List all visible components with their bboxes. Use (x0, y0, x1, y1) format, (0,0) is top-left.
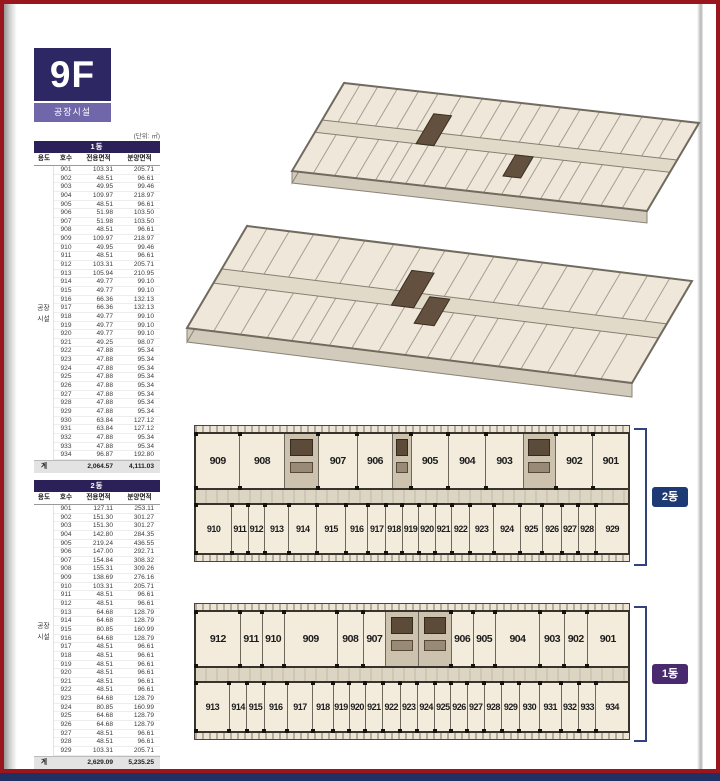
plan2-top-row: 909 908 907 906 (194, 432, 630, 490)
unit-number: 924 (419, 702, 433, 712)
cell-supply-area: 292.71 (119, 548, 160, 556)
cell-supply-area: 99.46 (119, 244, 160, 252)
cell-exclusive-area: 48.51 (78, 730, 119, 738)
cell-unit-number: 901 (54, 505, 78, 513)
unit-cell: 925 (435, 683, 451, 731)
cell-supply-area: 99.10 (119, 278, 160, 286)
use-label-line2: 시설 (37, 631, 49, 641)
cell-exclusive-area: 49.95 (78, 183, 119, 191)
unit-cell: 905 (412, 434, 449, 488)
total-supply-area: 4,111.03 (119, 461, 160, 473)
cell-supply-area: 95.34 (119, 382, 160, 390)
column-header-supply-area: 분양면적 (119, 492, 160, 504)
unit-cell (524, 434, 557, 488)
page-left-shading (4, 4, 17, 769)
cell-unit-number: 906 (54, 209, 78, 217)
total-spacer (54, 757, 78, 769)
unit-number: 907 (366, 633, 382, 645)
cell-exclusive-area: 103.31 (78, 747, 119, 755)
unit-cell: 915 (317, 505, 346, 553)
cell-supply-area: 128.79 (119, 635, 160, 643)
table-row: 906 147.00 292.71 (54, 548, 160, 557)
cell-unit-number: 908 (54, 565, 78, 573)
table-row: 915 80.85 160.99 (54, 626, 160, 635)
unit-cell: 928 (485, 683, 502, 731)
cell-exclusive-area: 48.51 (78, 201, 119, 209)
cell-supply-area: 308.32 (119, 557, 160, 565)
unit-cell: 922 (452, 505, 470, 553)
cell-supply-area: 218.97 (119, 235, 160, 243)
table-row: 927 47.88 95.34 (54, 391, 160, 400)
total-supply-area: 5,235.25 (119, 757, 160, 769)
table-header: 용도 호수 전용면적 분양면적 (34, 492, 160, 505)
unit-number: 908 (254, 455, 270, 467)
unit-number: 904 (459, 455, 475, 467)
cell-exclusive-area: 48.51 (78, 738, 119, 746)
table-row: 916 66.36 132.13 (54, 296, 160, 305)
cell-exclusive-area: 105.94 (78, 270, 119, 278)
cell-exclusive-area: 63.84 (78, 425, 119, 433)
table-row: 920 48.51 96.61 (54, 669, 160, 678)
cell-exclusive-area: 47.88 (78, 443, 119, 451)
table-rows: 901 103.31 205.71 902 48.51 96.61 903 (54, 166, 160, 460)
total-label: 계 (34, 461, 54, 473)
cell-exclusive-area: 109.97 (78, 235, 119, 243)
unit-number: 926 (452, 702, 466, 712)
unit-number: 918 (316, 702, 330, 712)
cell-unit-number: 914 (54, 278, 78, 286)
bracket-1dong (634, 606, 647, 742)
unit-number: 903 (496, 455, 512, 467)
table-row: 922 48.51 96.61 (54, 686, 160, 695)
unit-number: 902 (566, 455, 582, 467)
cell-exclusive-area: 147.00 (78, 548, 119, 556)
cell-supply-area: 128.79 (119, 609, 160, 617)
cell-unit-number: 926 (54, 382, 78, 390)
table-row: 911 48.51 96.61 (54, 591, 160, 600)
cell-exclusive-area: 48.51 (78, 686, 119, 694)
cell-unit-number: 907 (54, 557, 78, 565)
table-row: 925 47.88 95.34 (54, 373, 160, 382)
area-table-2dong: 2동 용도 호수 전용면적 분양면적 공장 시설 901 127.11 (34, 480, 160, 769)
unit-number: 907 (330, 455, 346, 467)
unit-cell: 914 (230, 683, 247, 731)
unit-cell: 921 (366, 683, 383, 731)
cell-unit-number: 930 (54, 417, 78, 425)
unit-number: 933 (580, 702, 594, 712)
table-title-2dong: 2동 (34, 480, 160, 492)
unit-number: 922 (454, 524, 468, 534)
cell-exclusive-area: 48.51 (78, 226, 119, 234)
table-row: 919 48.51 96.61 (54, 661, 160, 670)
cell-unit-number: 902 (54, 175, 78, 183)
unit-number: 929 (504, 702, 518, 712)
cell-exclusive-area: 64.68 (78, 617, 119, 625)
cell-supply-area: 95.34 (119, 356, 160, 364)
cell-unit-number: 903 (54, 522, 78, 530)
cell-supply-area: 128.79 (119, 617, 160, 625)
cell-unit-number: 905 (54, 540, 78, 548)
table-total-row: 계 2,064.57 4,111.03 (34, 461, 160, 473)
table-row: 911 48.51 96.61 (54, 252, 160, 261)
unit-cell: 919 (334, 683, 350, 731)
cell-supply-area: 205.71 (119, 747, 160, 755)
cell-exclusive-area: 103.31 (78, 583, 119, 591)
unit-cell: 928 (579, 505, 597, 553)
unit-number: 915 (324, 524, 338, 534)
cell-exclusive-area: 49.77 (78, 287, 119, 295)
unit-cell: 912 (196, 612, 241, 666)
unit-cell: 912 (249, 505, 265, 553)
table-row: 924 80.85 160.99 (54, 704, 160, 713)
plan1-bottom-row: 913 914 915 916 917 (194, 681, 630, 733)
cell-exclusive-area: 154.84 (78, 557, 119, 565)
cell-exclusive-area: 47.88 (78, 391, 119, 399)
cell-supply-area: 210.95 (119, 270, 160, 278)
table-row: 930 63.84 127.12 (54, 417, 160, 426)
cell-unit-number: 909 (54, 235, 78, 243)
unit-cell: 916 (265, 683, 288, 731)
unit-number: 926 (545, 524, 559, 534)
cell-exclusive-area: 64.68 (78, 712, 119, 720)
unit-number: 917 (370, 524, 384, 534)
unit-number: 921 (437, 524, 451, 534)
unit-number: 928 (486, 702, 500, 712)
cell-supply-area: 96.61 (119, 175, 160, 183)
cell-unit-number: 908 (54, 226, 78, 234)
cell-supply-area: 96.61 (119, 591, 160, 599)
cell-unit-number: 927 (54, 391, 78, 399)
table-row: 909 109.97 218.97 (54, 235, 160, 244)
unit-number: 905 (476, 633, 492, 645)
table-body: 공장 시설 901 127.11 253.11 902 151. (34, 505, 160, 757)
unit-cell: 913 (265, 505, 289, 553)
cell-supply-area: 96.61 (119, 678, 160, 686)
cell-exclusive-area: 103.31 (78, 166, 119, 174)
cell-exclusive-area: 48.51 (78, 661, 119, 669)
cell-supply-area: 96.61 (119, 252, 160, 260)
cell-supply-area: 96.61 (119, 661, 160, 669)
cell-unit-number: 929 (54, 408, 78, 416)
cell-unit-number: 922 (54, 686, 78, 694)
cell-supply-area: 276.16 (119, 574, 160, 582)
cell-supply-area: 96.61 (119, 686, 160, 694)
unit-number: 916 (269, 702, 283, 712)
cell-exclusive-area: 127.11 (78, 505, 119, 513)
unit-cell (285, 434, 319, 488)
use-label-line1: 공장 (37, 302, 49, 312)
cell-supply-area: 96.61 (119, 600, 160, 608)
cell-unit-number: 916 (54, 296, 78, 304)
cell-supply-area: 95.34 (119, 373, 160, 381)
table-row: 912 48.51 96.61 (54, 600, 160, 609)
cell-unit-number: 931 (54, 425, 78, 433)
cell-unit-number: 911 (54, 252, 78, 260)
unit-cell: 901 (593, 434, 628, 488)
unit-number: 902 (568, 633, 584, 645)
unit-number: 931 (544, 702, 558, 712)
cell-unit-number: 901 (54, 166, 78, 174)
cell-unit-number: 912 (54, 261, 78, 269)
unit-number: 904 (509, 633, 525, 645)
unit-number: 924 (500, 524, 514, 534)
table-row: 913 105.94 210.95 (54, 270, 160, 279)
cell-supply-area: 96.61 (119, 652, 160, 660)
unit-cell: 914 (289, 505, 317, 553)
table-row: 914 64.68 128.79 (54, 617, 160, 626)
unit-cell: 927 (562, 505, 578, 553)
total-exclusive-area: 2,064.57 (78, 461, 119, 473)
unit-cell: 922 (383, 683, 400, 731)
unit-cell: 930 (520, 683, 540, 731)
cell-unit-number: 925 (54, 712, 78, 720)
cell-unit-number: 924 (54, 365, 78, 373)
unit-cell: 916 (346, 505, 368, 553)
cell-supply-area: 96.61 (119, 643, 160, 651)
cell-exclusive-area: 48.51 (78, 252, 119, 260)
cell-supply-area: 96.61 (119, 730, 160, 738)
use-label-line1: 공장 (37, 620, 49, 630)
cell-exclusive-area: 151.30 (78, 514, 119, 522)
badge-1dong: 1동 (652, 664, 688, 684)
unit-number: 901 (600, 633, 616, 645)
total-spacer (54, 461, 78, 473)
cell-exclusive-area: 47.88 (78, 365, 119, 373)
plan1-bottom-facade (194, 733, 630, 740)
unit-cell: 931 (540, 683, 562, 731)
cell-exclusive-area: 64.68 (78, 695, 119, 703)
unit-number: 910 (265, 633, 281, 645)
cell-unit-number: 929 (54, 747, 78, 755)
table-row: 914 49.77 99.10 (54, 278, 160, 287)
unit-number: 909 (210, 455, 226, 467)
cell-supply-area: 99.10 (119, 322, 160, 330)
unit-cell: 915 (247, 683, 264, 731)
unit-cell: 905 (474, 612, 496, 666)
table-row: 927 48.51 96.61 (54, 730, 160, 739)
area-table-1dong: 1동 용도 호수 전용면적 분양면적 공장 시설 901 103.31 (34, 141, 160, 473)
cell-unit-number: 934 (54, 451, 78, 459)
cell-unit-number: 924 (54, 704, 78, 712)
table-row: 913 64.68 128.79 (54, 609, 160, 618)
cell-unit-number: 923 (54, 695, 78, 703)
cell-exclusive-area: 51.98 (78, 218, 119, 226)
plan2-bottom-facade (194, 555, 630, 562)
cell-supply-area: 205.71 (119, 261, 160, 269)
column-header-use: 용도 (34, 492, 54, 504)
table-row: 924 47.88 95.34 (54, 365, 160, 374)
unit-cell: 910 (263, 612, 285, 666)
cell-supply-area: 96.61 (119, 669, 160, 677)
cell-supply-area: 95.34 (119, 391, 160, 399)
unit-cell: 925 (521, 505, 543, 553)
cell-exclusive-area: 49.77 (78, 322, 119, 330)
cell-exclusive-area: 151.30 (78, 522, 119, 530)
table-row: 920 49.77 99.10 (54, 330, 160, 339)
cell-unit-number: 902 (54, 514, 78, 522)
unit-cell: 906 (452, 612, 474, 666)
cell-unit-number: 920 (54, 669, 78, 677)
table-row: 925 64.68 128.79 (54, 712, 160, 721)
unit-cell: 918 (386, 505, 402, 553)
cell-unit-number: 917 (54, 643, 78, 651)
cell-unit-number: 914 (54, 617, 78, 625)
unit-number: 922 (385, 702, 399, 712)
cell-exclusive-area: 64.68 (78, 609, 119, 617)
unit-cell: 924 (494, 505, 520, 553)
table-title-1dong: 1동 (34, 141, 160, 153)
cell-supply-area: 309.26 (119, 565, 160, 573)
table-row: 906 51.98 103.50 (54, 209, 160, 218)
table-row: 908 48.51 96.61 (54, 226, 160, 235)
unit-number: 908 (342, 633, 358, 645)
table-row: 919 49.77 99.10 (54, 322, 160, 331)
cell-unit-number: 910 (54, 583, 78, 591)
unit-cell: 929 (596, 505, 628, 553)
unit-number: 912 (250, 524, 264, 534)
unit-number: 923 (402, 702, 416, 712)
column-header-supply-area: 분양면적 (119, 153, 160, 165)
plan2-bottom-row: 910 911 912 913 914 (194, 503, 630, 555)
unit-cell: 907 (319, 434, 358, 488)
unit-cell: 927 (468, 683, 485, 731)
floor-plan-2dong: 909 908 907 906 (194, 425, 630, 562)
table-row: 905 219.24 436.55 (54, 540, 160, 549)
column-header-exclusive-area: 전용면적 (78, 153, 119, 165)
cell-exclusive-area: 138.69 (78, 574, 119, 582)
unit-number: 911 (233, 524, 246, 534)
cell-supply-area: 128.79 (119, 695, 160, 703)
table-row: 910 103.31 205.71 (54, 583, 160, 592)
table-row: 904 109.97 218.97 (54, 192, 160, 201)
unit-cell: 909 (285, 612, 338, 666)
unit-number: 910 (207, 524, 221, 534)
table-row: 903 151.30 301.27 (54, 522, 160, 531)
table-row: 912 103.31 205.71 (54, 261, 160, 270)
cell-unit-number: 933 (54, 443, 78, 451)
cell-unit-number: 913 (54, 609, 78, 617)
cell-exclusive-area: 96.87 (78, 451, 119, 459)
unit-cell: 917 (368, 505, 386, 553)
iso-floorplate-2 (162, 196, 707, 431)
cell-unit-number: 919 (54, 322, 78, 330)
unit-cell: 921 (436, 505, 452, 553)
use-label-line2: 시설 (37, 313, 49, 323)
cell-exclusive-area: 155.31 (78, 565, 119, 573)
use-merged-cell: 공장 시설 (34, 166, 54, 460)
table-row: 905 48.51 96.61 (54, 201, 160, 210)
table-row: 907 51.98 103.50 (54, 218, 160, 227)
cell-unit-number: 921 (54, 678, 78, 686)
unit-cell: 926 (543, 505, 562, 553)
cell-exclusive-area: 48.51 (78, 600, 119, 608)
table-row: 910 49.95 99.46 (54, 244, 160, 253)
unit-number: 927 (563, 524, 577, 534)
cell-supply-area: 103.50 (119, 218, 160, 226)
table-row: 923 47.88 95.34 (54, 356, 160, 365)
cell-exclusive-area: 48.51 (78, 669, 119, 677)
cell-supply-area: 218.97 (119, 192, 160, 200)
unit-number: 906 (454, 633, 470, 645)
cell-supply-area: 99.10 (119, 330, 160, 338)
unit-cell: 920 (419, 505, 435, 553)
table-total-row: 계 2,629.09 5,235.25 (34, 757, 160, 769)
cell-unit-number: 909 (54, 574, 78, 582)
unit-number: 923 (475, 524, 489, 534)
table-row: 904 142.80 284.35 (54, 531, 160, 540)
unit-cell: 913 (196, 683, 230, 731)
unit-number: 914 (296, 524, 310, 534)
cell-exclusive-area: 48.51 (78, 175, 119, 183)
badge-2dong: 2동 (652, 487, 688, 507)
bracket-2dong (634, 428, 647, 566)
cell-unit-number: 904 (54, 192, 78, 200)
cell-exclusive-area: 48.51 (78, 678, 119, 686)
unit-number: 916 (350, 524, 364, 534)
table-row: 934 96.87 192.80 (54, 451, 160, 460)
unit-cell: 903 (486, 434, 523, 488)
unit-number: 920 (350, 702, 364, 712)
unit-cell (419, 612, 452, 666)
cell-exclusive-area: 47.88 (78, 408, 119, 416)
table-row: 922 47.88 95.34 (54, 347, 160, 356)
cell-exclusive-area: 219.24 (78, 540, 119, 548)
cell-unit-number: 905 (54, 201, 78, 209)
cell-unit-number: 906 (54, 548, 78, 556)
cell-supply-area: 160.99 (119, 626, 160, 634)
cell-exclusive-area: 47.88 (78, 356, 119, 364)
unit-cell: 908 (338, 612, 364, 666)
table-row: 931 63.84 127.12 (54, 425, 160, 434)
cell-supply-area: 128.79 (119, 721, 160, 729)
cell-exclusive-area: 49.77 (78, 278, 119, 286)
cell-exclusive-area: 80.85 (78, 704, 119, 712)
unit-note: (단위: ㎡) (34, 130, 160, 140)
unit-number: 919 (404, 524, 418, 534)
floor-badge: 9F 공장시설 (34, 48, 111, 122)
cell-unit-number: 903 (54, 183, 78, 191)
cell-unit-number: 916 (54, 635, 78, 643)
plan2-corridor (194, 490, 630, 503)
page: 9F 공장시설 (단위: ㎡) 1동 용도 호수 전용면적 분양면적 공장 시설 (0, 0, 720, 781)
cell-exclusive-area: 47.88 (78, 434, 119, 442)
unit-number: 925 (436, 702, 450, 712)
cell-supply-area: 301.27 (119, 522, 160, 530)
cell-exclusive-area: 103.31 (78, 261, 119, 269)
cell-supply-area: 99.46 (119, 183, 160, 191)
cell-unit-number: 920 (54, 330, 78, 338)
table-row: 921 48.51 96.61 (54, 678, 160, 687)
unit-cell: 902 (556, 434, 593, 488)
unit-number: 927 (469, 702, 483, 712)
unit-cell: 923 (470, 505, 494, 553)
cell-supply-area: 99.10 (119, 313, 160, 321)
cell-supply-area: 132.13 (119, 304, 160, 312)
unit-cell: 908 (240, 434, 284, 488)
cell-supply-area: 127.12 (119, 425, 160, 433)
table-row: 901 103.31 205.71 (54, 166, 160, 175)
unit-cell: 904 (496, 612, 541, 666)
cell-exclusive-area: 64.68 (78, 635, 119, 643)
unit-number: 934 (605, 702, 619, 712)
unit-number: 918 (387, 524, 401, 534)
use-merged-cell: 공장 시설 (34, 505, 54, 756)
plan1-corridor (194, 668, 630, 681)
plan2-top-facade (194, 425, 630, 432)
table-row: 929 103.31 205.71 (54, 747, 160, 756)
unit-cell: 907 (364, 612, 386, 666)
unit-cell: 934 (596, 683, 628, 731)
